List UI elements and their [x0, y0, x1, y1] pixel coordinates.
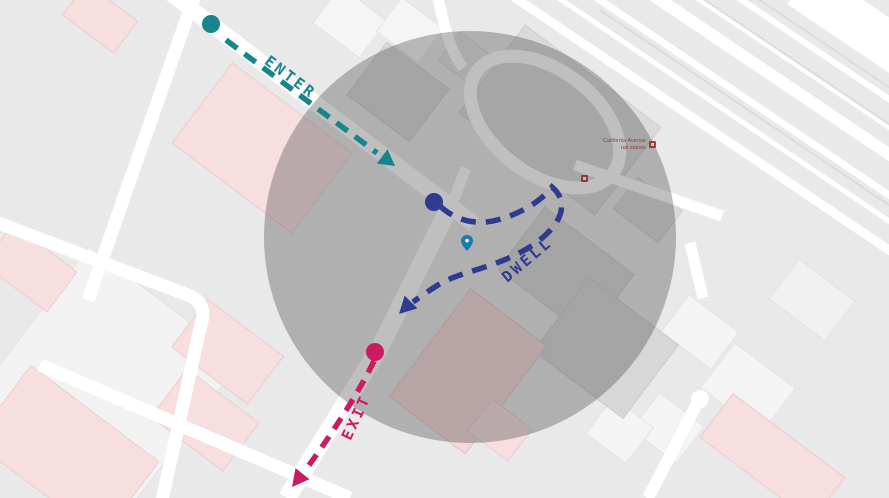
map-canvas: California Avenue rail station ENTER DWE…	[0, 0, 889, 498]
exit-arrowhead	[292, 468, 310, 487]
annotations-layer	[0, 0, 889, 498]
exit-start-dot	[366, 343, 384, 361]
dwell-start-dot	[425, 193, 443, 211]
enter-arrowhead	[377, 149, 395, 166]
location-pin-icon	[461, 235, 473, 251]
enter-start-dot	[202, 15, 220, 33]
